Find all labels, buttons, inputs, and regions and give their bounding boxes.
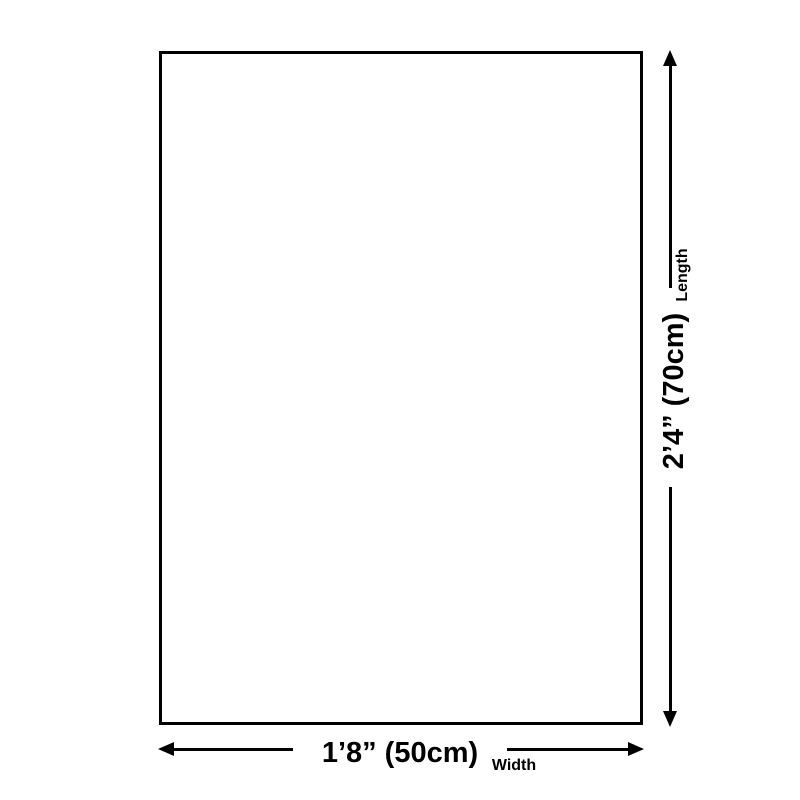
arrow-right-icon xyxy=(628,742,644,756)
width-arrow-shaft-right xyxy=(507,748,628,751)
product-outline-rectangle xyxy=(159,51,643,725)
arrow-down-icon xyxy=(663,711,677,727)
length-arrow-shaft-top xyxy=(669,64,672,288)
length-arrow-shaft-bottom xyxy=(669,487,672,714)
length-value: 2’4” (70cm) xyxy=(659,281,689,501)
width-arrow-shaft-left xyxy=(172,748,293,751)
width-label: Width xyxy=(454,757,574,775)
